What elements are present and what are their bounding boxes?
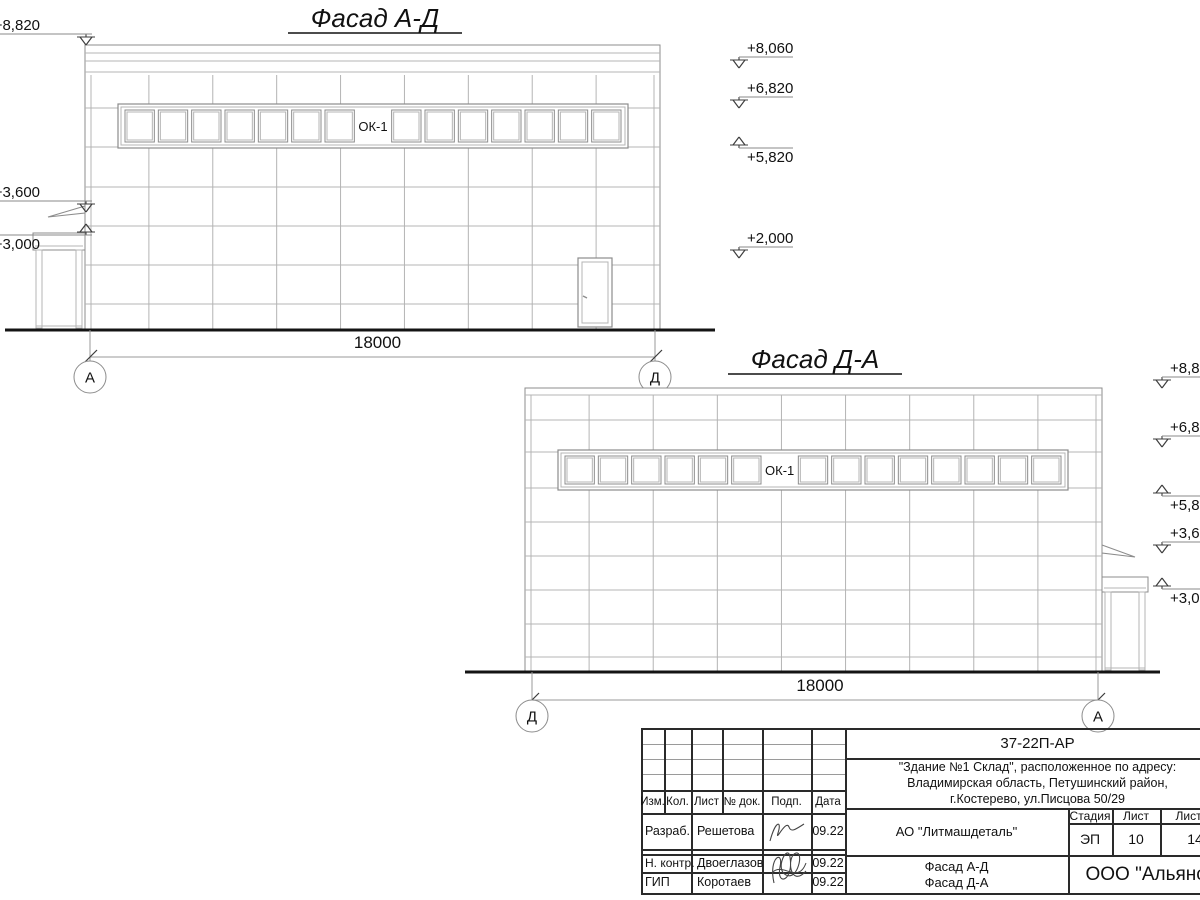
svg-text:А: А <box>1093 709 1103 726</box>
svg-text:+3,600: +3,600 <box>1170 525 1200 542</box>
svg-text:+3,000: +3,000 <box>0 236 40 253</box>
col-header-ndok: № док. <box>722 790 762 813</box>
svg-text:Фасад Д-А: Фасад Д-А <box>751 344 880 374</box>
dimension-line: 18000 <box>83 330 662 364</box>
dimension-value: 18000 <box>354 333 401 352</box>
svg-text:+8,820: +8,820 <box>0 17 40 34</box>
col-header-kol: Кол. <box>664 790 691 813</box>
sheets-label: Листов <box>1160 808 1200 823</box>
col-header-izm: Изм. <box>641 790 664 813</box>
object-line-3: г.Костерево, ул.Писцова 50/29 <box>950 791 1125 807</box>
facade-da: ОК-118000ДА+8,820+6,820+5,820+3,600+3,00… <box>465 344 1200 732</box>
row-razrab-date: 09.22 <box>811 813 845 849</box>
facade-da-title: Фасад Д-А <box>728 344 902 374</box>
svg-text:+6,820: +6,820 <box>747 80 793 97</box>
elevation-mark: +8,820 <box>0 17 95 45</box>
dimension-line: 18000 <box>525 672 1105 707</box>
row-gip-name: Коротаев <box>693 872 762 892</box>
signature-scribbles <box>762 813 811 895</box>
window-strip-label: ОК-1 <box>358 119 387 134</box>
sheets-value: 14 <box>1160 823 1200 855</box>
dimension-value: 18000 <box>796 676 843 695</box>
row-nkontr-date: 09.22 <box>811 854 845 872</box>
client-name: АО "Литмашдеталь" <box>845 808 1068 855</box>
elevation-mark: +2,000 <box>730 230 793 258</box>
svg-text:+5,820: +5,820 <box>747 149 793 166</box>
svg-text:+8,060: +8,060 <box>747 40 793 57</box>
svg-text:Фасад А-Д: Фасад А-Д <box>311 3 440 33</box>
stage-value: ЭП <box>1068 823 1112 855</box>
sheet-value: 10 <box>1112 823 1160 855</box>
elevation-mark: +5,820 <box>730 137 793 166</box>
col-header-list: Лист <box>691 790 722 813</box>
svg-text:+2,000: +2,000 <box>747 230 793 247</box>
window-strip-label: ОК-1 <box>765 463 794 478</box>
facade-ad-title: Фасад А-Д <box>288 3 462 33</box>
row-gip-date: 09.22 <box>811 872 845 892</box>
row-gip-role: ГИП <box>641 872 693 892</box>
sheet-content-title: Фасад А-Д Фасад Д-А <box>845 855 1068 895</box>
svg-text:+8,820: +8,820 <box>1170 360 1200 377</box>
elevation-mark: +8,820 <box>1153 360 1200 388</box>
organization-name: ООО "Альянс" <box>1068 855 1200 895</box>
elevation-mark: +3,600 <box>1153 525 1200 553</box>
sheet-label: Лист <box>1112 808 1160 823</box>
stage-label: Стадия <box>1068 808 1112 823</box>
window-strip: ОК-1 <box>558 450 1068 490</box>
elevation-mark: +8,060 <box>730 40 793 68</box>
drawing-sheet: ОК-118000АД+8,060+6,820+5,820+2,000+8,82… <box>0 0 1200 900</box>
building-outline <box>525 388 1102 672</box>
row-nkontr-role: Н. контр. <box>641 854 693 872</box>
axis-bubble-А: А <box>74 361 106 393</box>
object-description: "Здание №1 Склад", расположенное по адре… <box>845 758 1200 808</box>
window-strip: ОК-1 <box>118 104 628 148</box>
svg-text:+6,820: +6,820 <box>1170 419 1200 436</box>
object-line-2: Владимирская область, Петушинский район, <box>907 775 1168 791</box>
elevation-mark: +3,000 <box>1153 578 1200 607</box>
elevation-mark: +5,820 <box>1153 485 1200 514</box>
axis-bubble-Д: Д <box>516 700 548 732</box>
door <box>578 258 612 327</box>
svg-text:+3,600: +3,600 <box>0 184 40 201</box>
row-razrab-name: Решетова <box>693 813 762 849</box>
col-header-data: Дата <box>811 790 845 813</box>
annex <box>1102 577 1148 670</box>
sheet-title-line-2: Фасад Д-А <box>925 875 989 891</box>
svg-text:+3,000: +3,000 <box>1170 590 1200 607</box>
canopy <box>1102 545 1135 557</box>
facade-ad: ОК-118000АД+8,060+6,820+5,820+2,000+8,82… <box>0 3 793 393</box>
row-razrab-role: Разраб. <box>641 813 691 849</box>
svg-text:А: А <box>85 370 95 387</box>
row-nkontr-name: Двоеглазов <box>693 854 762 872</box>
title-block: Изм. Кол. Лист № док. Подп. Дата Разраб.… <box>641 728 1200 895</box>
sheet-title-line-1: Фасад А-Д <box>925 859 989 875</box>
svg-text:Д: Д <box>527 709 537 726</box>
canopy <box>48 206 85 217</box>
svg-text:+5,820: +5,820 <box>1170 497 1200 514</box>
annex <box>33 233 85 328</box>
document-number: 37-22П-АР <box>845 728 1200 758</box>
svg-text:Д: Д <box>650 370 660 387</box>
elevation-mark: +6,820 <box>1153 419 1200 447</box>
object-line-1: "Здание №1 Склад", расположенное по адре… <box>899 759 1177 775</box>
col-header-podp: Подп. <box>762 790 811 813</box>
elevation-mark: +6,820 <box>730 80 793 108</box>
